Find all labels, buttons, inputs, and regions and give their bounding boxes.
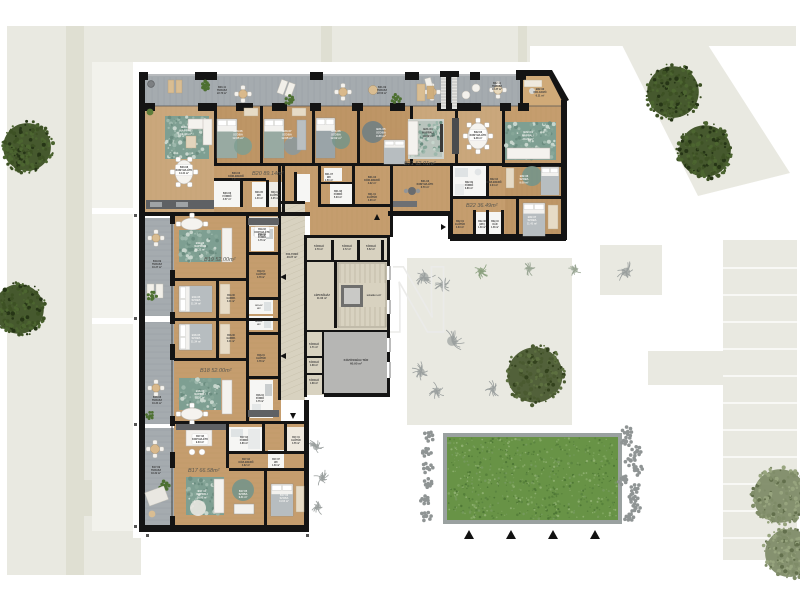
- svg-text:18.32 m²: 18.32 m²: [151, 471, 161, 475]
- svg-text:B22-08: B22-08: [478, 221, 486, 223]
- svg-text:B18-01: B18-01: [257, 355, 265, 357]
- svg-text:6.11 m²: 6.11 m²: [536, 93, 545, 97]
- svg-text:WC: WC: [257, 308, 261, 310]
- svg-text:1.68 m²: 1.68 m²: [310, 381, 318, 385]
- svg-text:19.43 m²: 19.43 m²: [180, 132, 192, 136]
- svg-text:5.86 m²: 5.86 m²: [232, 177, 241, 181]
- svg-text:4.00 m²: 4.00 m²: [368, 198, 376, 202]
- svg-text:B19-06: B19-06: [227, 295, 235, 297]
- svg-text:2.34 m²: 2.34 m²: [490, 183, 498, 187]
- svg-text:9.48 m²: 9.48 m²: [474, 136, 483, 140]
- svg-text:5.03 m²: 5.03 m²: [334, 195, 342, 199]
- svg-text:B17-07: B17-07: [272, 459, 280, 461]
- svg-text:20.21 m²: 20.21 m²: [522, 137, 533, 141]
- svg-text:9.41 m²: 9.41 m²: [239, 495, 248, 499]
- svg-text:B19 52.00m²: B19 52.00m²: [204, 257, 236, 263]
- svg-text:B19-03: B19-03: [258, 229, 266, 231]
- svg-text:22.70 m²: 22.70 m²: [217, 91, 227, 95]
- svg-text:1.68 m²: 1.68 m²: [310, 363, 318, 367]
- svg-text:B19-07: B19-07: [255, 305, 263, 307]
- svg-text:ELŐTÉR: ELŐTÉR: [291, 439, 301, 442]
- svg-text:6.70 m²: 6.70 m²: [421, 185, 430, 189]
- svg-text:4.57 m²: 4.57 m²: [223, 197, 232, 201]
- svg-text:12.05 m²: 12.05 m²: [232, 136, 243, 140]
- svg-text:WC: WC: [274, 462, 278, 464]
- svg-text:12.05 m²: 12.05 m²: [281, 136, 292, 140]
- svg-text:3.86 m²: 3.86 m²: [465, 186, 473, 190]
- svg-text:4.62 m²: 4.62 m²: [242, 463, 250, 467]
- svg-text:11.54 m²: 11.54 m²: [279, 499, 289, 503]
- svg-text:11.34 m²: 11.34 m²: [191, 301, 201, 305]
- svg-text:B22-10: B22-10: [491, 221, 499, 223]
- svg-text:GARDR.: GARDR.: [226, 297, 235, 300]
- svg-text:12.02 m²: 12.02 m²: [330, 136, 341, 140]
- svg-text:1.40 m²: 1.40 m²: [255, 196, 263, 200]
- svg-text:13.37 m²: 13.37 m²: [492, 87, 502, 91]
- svg-text:ELŐTÉR: ELŐTÉR: [256, 273, 266, 276]
- svg-text:11.41 m²: 11.41 m²: [527, 221, 537, 225]
- svg-text:4.63 m²: 4.63 m²: [456, 225, 464, 229]
- svg-text:9.09 m²: 9.09 m²: [520, 180, 529, 184]
- svg-text:B18-07: B18-07: [255, 321, 263, 323]
- svg-text:9.30 m²: 9.30 m²: [376, 134, 386, 138]
- svg-text:ELŐTÉR: ELŐTÉR: [256, 357, 266, 360]
- svg-text:B19-04: B19-04: [258, 233, 266, 236]
- svg-text:5.52 m²: 5.52 m²: [367, 247, 375, 251]
- svg-text:4.86 m²: 4.86 m²: [240, 441, 248, 445]
- svg-text:B21 62.01m²: B21 62.01m²: [404, 161, 436, 167]
- svg-text:60.95 m²: 60.95 m²: [350, 362, 362, 366]
- svg-text:4.05 m²: 4.05 m²: [271, 196, 279, 200]
- svg-text:14.41 m²: 14.41 m²: [179, 171, 189, 175]
- svg-text:B18 52.00m²: B18 52.00m²: [200, 368, 232, 374]
- svg-text:B17 66.58m²: B17 66.58m²: [188, 468, 220, 474]
- svg-text:4.32 m²: 4.32 m²: [368, 181, 377, 185]
- svg-text:B17-01: B17-01: [292, 437, 300, 439]
- svg-text:B18-06: B18-06: [227, 335, 235, 337]
- svg-text:22.50 m²: 22.50 m²: [377, 91, 387, 95]
- svg-text:B20 89.14m²: B20 89.14m²: [252, 171, 284, 177]
- svg-text:(WC): (WC): [479, 224, 485, 226]
- svg-text:KÁD: KÁD: [493, 223, 498, 226]
- svg-text:40.27 m²: 40.27 m²: [287, 255, 298, 259]
- svg-text:SZEMÉLYLIFT: SZEMÉLYLIFT: [367, 294, 382, 297]
- svg-text:WC: WC: [257, 324, 261, 326]
- svg-text:1.50 m²: 1.50 m²: [325, 178, 333, 182]
- svg-text:16.27 m²: 16.27 m²: [152, 265, 162, 269]
- svg-text:GARDR.: GARDR.: [226, 337, 235, 340]
- svg-text:2.72 m²: 2.72 m²: [343, 247, 351, 251]
- svg-text:1.71 m²: 1.71 m²: [310, 345, 318, 349]
- svg-text:18.31 m²: 18.31 m²: [195, 247, 206, 251]
- svg-text:16.92 m²: 16.92 m²: [197, 495, 208, 499]
- svg-text:FÜRDŐ: FÜRDŐ: [256, 397, 264, 400]
- svg-text:B22 36.49m²: B22 36.49m²: [466, 203, 498, 209]
- svg-text:16.34 m²: 16.34 m²: [152, 401, 162, 405]
- svg-text:11.03 m²: 11.03 m²: [317, 296, 327, 300]
- svg-text:9.33 m²: 9.33 m²: [196, 440, 204, 444]
- svg-text:B19-01: B19-01: [257, 271, 265, 273]
- svg-text:18.31 m²: 18.31 m²: [195, 395, 206, 399]
- svg-text:2.79 m²: 2.79 m²: [315, 247, 323, 251]
- svg-text:11.34 m²: 11.34 m²: [191, 339, 201, 343]
- svg-text:B18-04: B18-04: [256, 394, 264, 397]
- svg-text:19.32 m²: 19.32 m²: [422, 134, 433, 138]
- svg-text:FÜRDŐ: FÜRDŐ: [258, 236, 266, 239]
